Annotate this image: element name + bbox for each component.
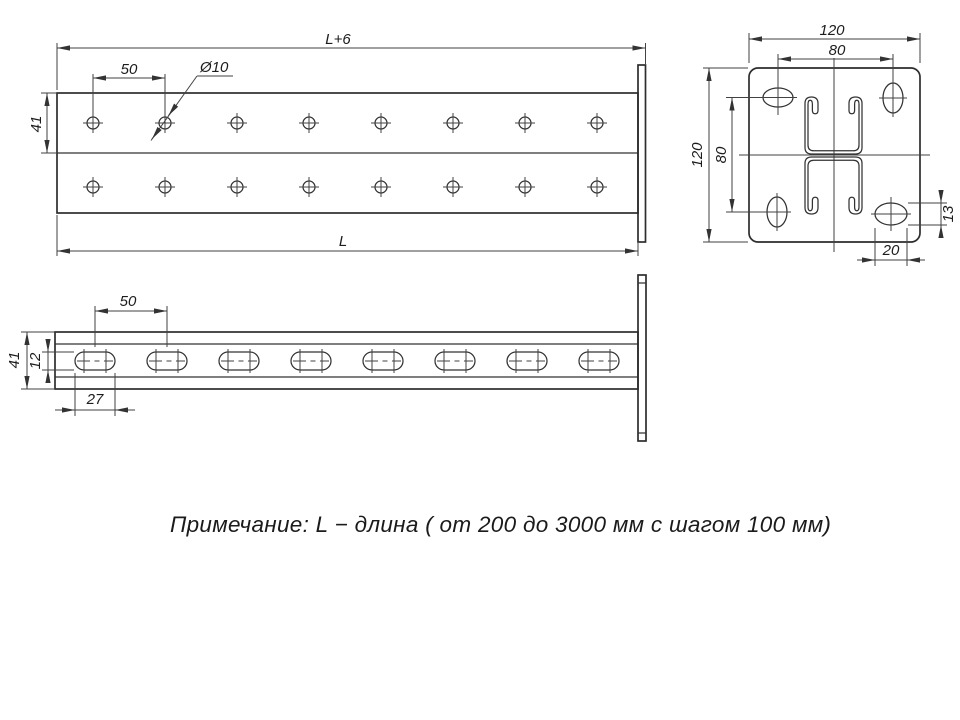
dim-label-channel-height-plan: 41 xyxy=(28,116,45,133)
dim-label-hole-span-horizontal: 80 xyxy=(829,42,846,59)
end-plate-side xyxy=(638,275,646,441)
end-plate-plan xyxy=(638,65,646,242)
dim-overall-length: L+6 xyxy=(57,31,646,90)
dim-label-plate-height: 120 xyxy=(689,142,706,168)
plan-outline xyxy=(57,65,646,242)
dim-corner-slot-height: 13 xyxy=(908,191,957,237)
dim-label-hole-span-vertical: 80 xyxy=(713,146,730,163)
dim-channel-height-plan: 41 xyxy=(28,93,57,153)
dim-slot-pitch: 50 xyxy=(95,293,167,347)
dim-label-corner-slot-height: 13 xyxy=(940,205,957,222)
dim-label-slot-pitch: 50 xyxy=(120,293,137,310)
dim-label-slot-height: 12 xyxy=(27,352,44,369)
dim-label-hole-diameter: Ø10 xyxy=(199,59,229,76)
corner-slot-bottom-left xyxy=(726,193,791,231)
dim-label-profile-height: 41 xyxy=(6,352,23,369)
corner-slot-bottom-right xyxy=(871,197,911,231)
drawing-sheet: L+6 50 Ø10 41 L xyxy=(0,0,960,720)
corner-slot-top-left xyxy=(726,54,797,115)
dim-corner-slot-width: 20 xyxy=(857,228,925,266)
dim-label-length: L xyxy=(339,233,347,250)
strut-body-side xyxy=(55,332,638,389)
end-view: 120 80 120 80 13 xyxy=(689,22,957,266)
dim-hole-span-horizontal: 80 xyxy=(778,42,893,59)
side-outline xyxy=(55,275,646,441)
dim-label-slot-length: 27 xyxy=(86,391,104,408)
plan-view: L+6 50 Ø10 41 L xyxy=(28,31,646,256)
dim-label-overall-length: L+6 xyxy=(325,31,351,48)
dim-label-corner-slot-width: 20 xyxy=(882,242,900,259)
side-slots xyxy=(75,349,619,373)
plan-holes-row-1 xyxy=(83,113,607,133)
dim-length: L xyxy=(57,215,638,256)
dim-label-plate-width: 120 xyxy=(819,22,845,39)
dim-label-hole-pitch-plan: 50 xyxy=(121,61,138,78)
corner-slot-top-right xyxy=(879,54,907,117)
dim-hole-pitch-plan: 50 xyxy=(93,61,165,116)
plan-holes-row-2 xyxy=(83,177,607,197)
dim-hole-span-vertical: 80 xyxy=(713,98,732,213)
side-view: 50 41 12 27 xyxy=(6,275,646,441)
dim-slot-length: 27 xyxy=(55,373,135,416)
note-text: Примечание: L − длина ( от 200 до 3000 м… xyxy=(170,512,820,542)
technical-drawing-canvas: L+6 50 Ø10 41 L xyxy=(0,0,960,720)
